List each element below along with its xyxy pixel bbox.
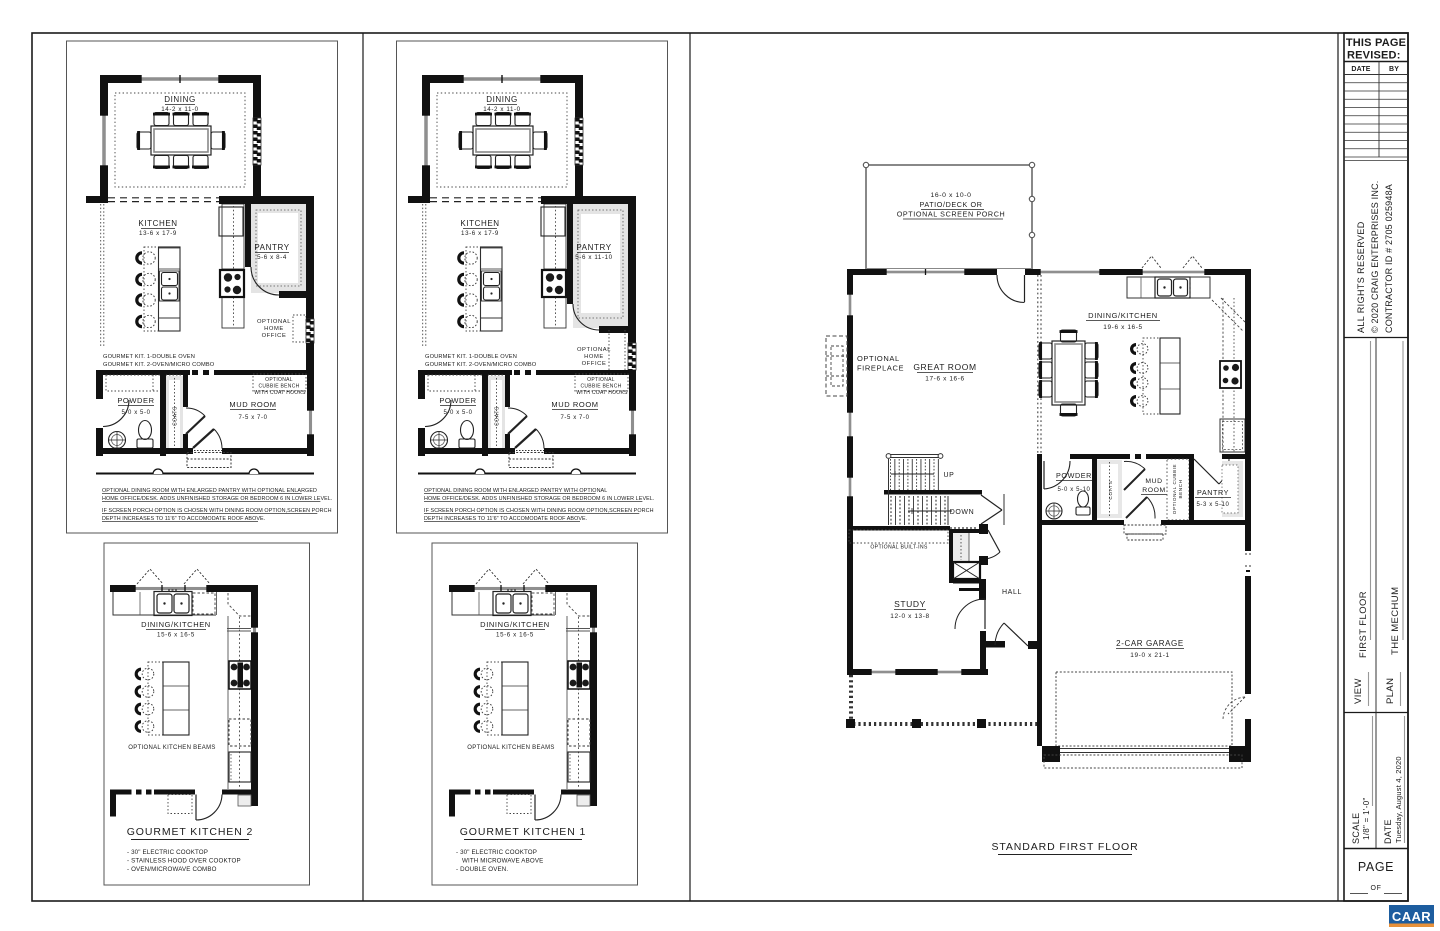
svg-text:GOURMET KITCHEN 2: GOURMET KITCHEN 2 — [127, 826, 254, 838]
svg-text:HOME OFFICE/DESK. ADDS UNFINIS: HOME OFFICE/DESK. ADDS UNFINISHED STORAG… — [424, 496, 654, 502]
svg-text:OPTIONAL: OPTIONAL — [265, 377, 293, 383]
svg-text:5-6 x 8-4: 5-6 x 8-4 — [257, 254, 287, 261]
svg-text:OPTIONAL DINING ROOM WITH ENLA: OPTIONAL DINING ROOM WITH ENLARGED PANTR… — [424, 488, 607, 494]
svg-text:DINING: DINING — [486, 95, 518, 104]
svg-text:HOME: HOME — [584, 354, 604, 360]
svg-text:5-6 x 11-10: 5-6 x 11-10 — [575, 254, 612, 261]
svg-text:2-CAR GARAGE: 2-CAR GARAGE — [1116, 639, 1184, 648]
svg-text:COATS: COATS — [1108, 480, 1114, 499]
svg-text:- 30" ELECTRIC COOKTOP: - 30" ELECTRIC COOKTOP — [127, 849, 208, 856]
svg-text:© 2020 CRAIG ENTERPRISES INC.: © 2020 CRAIG ENTERPRISES INC. — [1370, 181, 1380, 333]
svg-text:REVISED:: REVISED: — [1347, 50, 1401, 62]
svg-text:5-0 x 5-0: 5-0 x 5-0 — [121, 410, 150, 416]
svg-text:IF SCREEN PORCH OPTION IS CHOS: IF SCREEN PORCH OPTION IS CHOSEN WITH DI… — [424, 508, 654, 514]
svg-text:OPTIONAL: OPTIONAL — [587, 377, 615, 383]
svg-text:COATS: COATS — [173, 406, 179, 426]
svg-text:DATE: DATE — [1383, 819, 1393, 844]
svg-text:BENCH: BENCH — [1178, 479, 1183, 498]
svg-text:DINING/KITCHEN: DINING/KITCHEN — [141, 620, 211, 629]
svg-text:DINING: DINING — [164, 95, 196, 104]
svg-text:OPTIONAL KITCHEN BEAMS: OPTIONAL KITCHEN BEAMS — [467, 745, 554, 751]
svg-text:SCALE: SCALE — [1351, 812, 1361, 844]
svg-text:OPTIONAL BUILT-INS: OPTIONAL BUILT-INS — [870, 545, 928, 551]
svg-text:- 30" ELECTRIC COOKTOP: - 30" ELECTRIC COOKTOP — [456, 849, 537, 856]
svg-text:HOME: HOME — [264, 326, 284, 332]
svg-text:BY: BY — [1389, 66, 1399, 73]
svg-text:7-5 x 7-0: 7-5 x 7-0 — [560, 415, 589, 421]
svg-text:5-0 x 5-0: 5-0 x 5-0 — [443, 410, 472, 416]
svg-text:CUBBIE BENCH: CUBBIE BENCH — [580, 384, 621, 390]
svg-text:GOURMET KIT. 1-DOUBLE OVEN: GOURMET KIT. 1-DOUBLE OVEN — [103, 354, 195, 360]
svg-text:1/8" = 1'-0": 1/8" = 1'-0" — [1362, 797, 1371, 840]
svg-text:WITH COAT HOOKS: WITH COAT HOOKS — [576, 390, 628, 396]
svg-text:COATS: COATS — [495, 406, 501, 426]
svg-text:12-0 x 13-8: 12-0 x 13-8 — [890, 613, 929, 620]
svg-text:- OVEN/MICROWAVE COMBO: - OVEN/MICROWAVE COMBO — [127, 866, 217, 873]
svg-text:UP: UP — [944, 472, 955, 479]
svg-text:GOURMET KIT. 2-OVEN/MICRO COMB: GOURMET KIT. 2-OVEN/MICRO COMBO — [425, 362, 537, 368]
svg-text:5-3 x 5-10: 5-3 x 5-10 — [1196, 502, 1229, 508]
svg-text:13-6 x 17-9: 13-6 x 17-9 — [461, 230, 499, 237]
svg-text:GREAT ROOM: GREAT ROOM — [913, 362, 976, 372]
svg-text:DINING/KITCHEN: DINING/KITCHEN — [1088, 311, 1158, 320]
svg-text:15-6 x 16-5: 15-6 x 16-5 — [157, 632, 195, 639]
svg-text:GOURMET KITCHEN 1: GOURMET KITCHEN 1 — [460, 826, 587, 838]
svg-text:- DOUBLE OVEN.: - DOUBLE OVEN. — [456, 866, 508, 873]
svg-text:DEPTH INCREASES TO 11'6" TO AC: DEPTH INCREASES TO 11'6" TO ACCOMODATE R… — [424, 516, 587, 522]
svg-text:PATIO/DECK OR: PATIO/DECK OR — [919, 200, 982, 209]
svg-text:THIS PAGE: THIS PAGE — [1346, 37, 1406, 49]
svg-text:MUD: MUD — [1145, 478, 1162, 485]
svg-text:PANTRY: PANTRY — [576, 243, 611, 252]
svg-text:OPTIONAL DINING ROOM WITH ENLA: OPTIONAL DINING ROOM WITH ENLARGED PANTR… — [102, 488, 317, 494]
svg-text:KITCHEN: KITCHEN — [138, 219, 177, 228]
svg-text:OFFICE: OFFICE — [262, 333, 287, 339]
svg-text:OPTIONAL: OPTIONAL — [577, 347, 611, 353]
svg-text:POWDER: POWDER — [117, 396, 154, 405]
svg-text:HOME OFFICE/DESK. ADDS UNFINIS: HOME OFFICE/DESK. ADDS UNFINISHED STORAG… — [102, 496, 332, 502]
svg-text:OF: OF — [1371, 885, 1382, 892]
svg-text:VIEW: VIEW — [1353, 678, 1364, 704]
svg-text:Tuesday, August 4, 2020: Tuesday, August 4, 2020 — [1394, 756, 1403, 843]
svg-text:7-5 x 7-0: 7-5 x 7-0 — [238, 415, 267, 421]
svg-text:MUD ROOM: MUD ROOM — [551, 400, 598, 409]
svg-text:OPTIONAL KITCHEN BEAMS: OPTIONAL KITCHEN BEAMS — [128, 745, 215, 751]
svg-text:19-0 x 21-1: 19-0 x 21-1 — [1130, 652, 1169, 659]
svg-text:IF SCREEN PORCH OPTION IS CHOS: IF SCREEN PORCH OPTION IS CHOSEN WITH DI… — [102, 508, 332, 514]
svg-text:CAAR: CAAR — [1392, 909, 1431, 924]
svg-text:- STAINLESS HOOD OVER COOKTOP: - STAINLESS HOOD OVER COOKTOP — [127, 858, 241, 865]
svg-text:POWDER: POWDER — [439, 396, 476, 405]
svg-text:19-6 x 16-5: 19-6 x 16-5 — [1103, 324, 1142, 331]
svg-text:DOWN: DOWN — [950, 509, 975, 516]
svg-text:OFFICE: OFFICE — [582, 361, 607, 367]
svg-text:PANTRY: PANTRY — [254, 243, 289, 252]
svg-text:GOURMET KIT. 1-DOUBLE OVEN: GOURMET KIT. 1-DOUBLE OVEN — [425, 354, 517, 360]
svg-text:OPTIONAL: OPTIONAL — [857, 354, 900, 363]
svg-text:GOURMET KIT. 2-OVEN/MICRO COMB: GOURMET KIT. 2-OVEN/MICRO COMBO — [103, 362, 215, 368]
svg-text:STANDARD FIRST FLOOR: STANDARD FIRST FLOOR — [991, 841, 1138, 853]
svg-text:CUBBIE BENCH: CUBBIE BENCH — [258, 384, 299, 390]
svg-text:POWDER: POWDER — [1056, 471, 1092, 480]
svg-text:FIRST FLOOR: FIRST FLOOR — [1358, 591, 1369, 658]
svg-text:OPTIONAL CUBBIE: OPTIONAL CUBBIE — [1172, 464, 1177, 514]
svg-text:15-6 x 16-5: 15-6 x 16-5 — [496, 632, 534, 639]
svg-text:17-6 x 16-6: 17-6 x 16-6 — [925, 376, 964, 383]
svg-text:DATE: DATE — [1351, 66, 1370, 73]
svg-text:OPTIONAL SCREEN PORCH: OPTIONAL SCREEN PORCH — [897, 210, 1006, 219]
svg-text:DEPTH INCREASES TO 11'6" TO AC: DEPTH INCREASES TO 11'6" TO ACCOMODATE R… — [102, 516, 265, 522]
svg-text:CONTRACTOR ID # 2705 025948A: CONTRACTOR ID # 2705 025948A — [1384, 184, 1394, 333]
svg-text:OPTIONAL: OPTIONAL — [257, 319, 291, 325]
svg-text:FIREPLACE: FIREPLACE — [857, 364, 904, 373]
svg-text:ALL RIGHTS RESERVED: ALL RIGHTS RESERVED — [1356, 221, 1366, 333]
svg-text:KITCHEN: KITCHEN — [460, 219, 499, 228]
svg-text:STUDY: STUDY — [894, 599, 926, 609]
svg-text:WITH COAT HOOKS: WITH COAT HOOKS — [254, 390, 306, 396]
svg-text:13-6 x 17-9: 13-6 x 17-9 — [139, 230, 177, 237]
svg-text:16-0 x 10-0: 16-0 x 10-0 — [931, 192, 972, 199]
svg-text:HALL: HALL — [1002, 589, 1022, 596]
svg-text:PANTRY: PANTRY — [1197, 488, 1229, 497]
svg-text:ROOM: ROOM — [1142, 487, 1166, 494]
svg-text:THE MECHUM: THE MECHUM — [1390, 587, 1401, 655]
svg-text:MUD ROOM: MUD ROOM — [229, 400, 276, 409]
svg-text:PLAN: PLAN — [1385, 678, 1396, 704]
svg-text:PAGE: PAGE — [1358, 860, 1394, 874]
svg-text:WITH MICROWAVE ABOVE: WITH MICROWAVE ABOVE — [462, 858, 543, 865]
svg-text:DINING/KITCHEN: DINING/KITCHEN — [480, 620, 550, 629]
